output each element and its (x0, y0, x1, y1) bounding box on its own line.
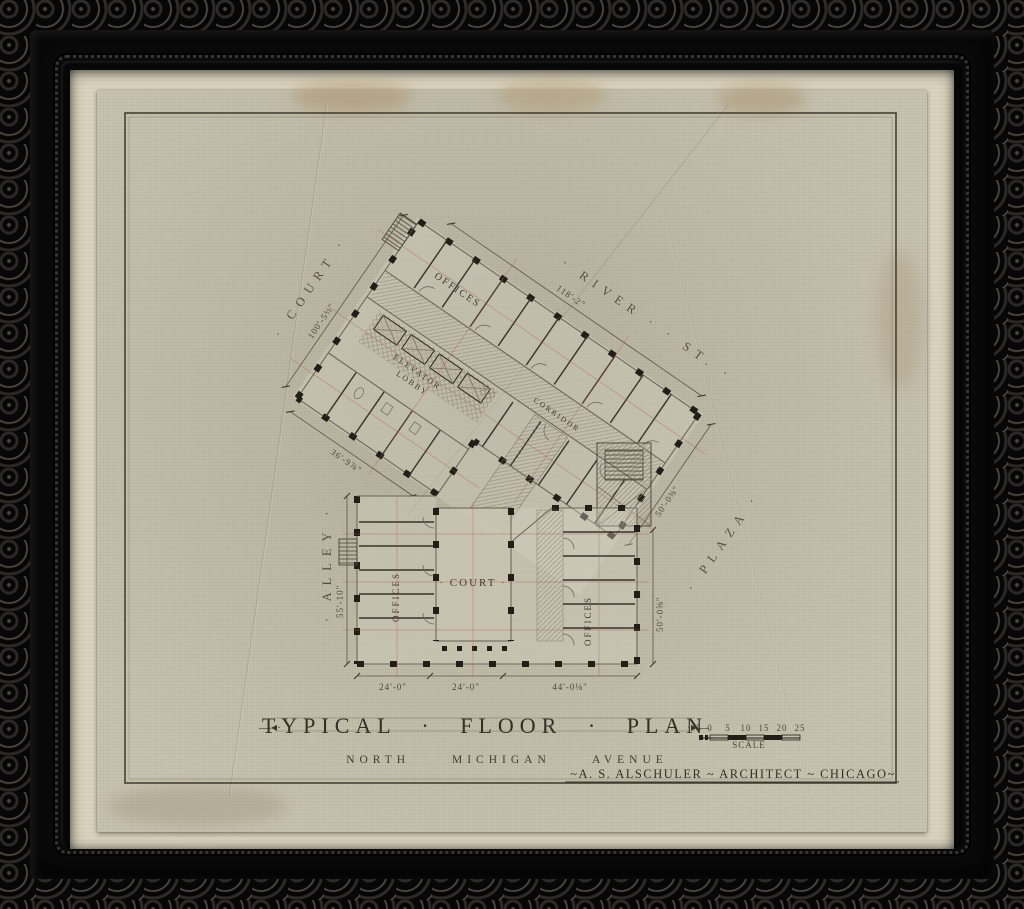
sheet-title: TYPICAL · FLOOR · PLAN (262, 713, 708, 738)
address-line: NORTH MICHIGAN AVENUE (346, 754, 668, 766)
svg-text:50'-0⅝": 50'-0⅝" (655, 596, 665, 632)
drawing-sheet: · RIVER · · ST. · 118'-2" · COURT · 100'… (97, 90, 927, 832)
svg-text:15: 15 (759, 723, 770, 733)
floor-plan-drawing: · RIVER · · ST. · 118'-2" · COURT · 100'… (97, 90, 927, 832)
svg-text:10: 10 (741, 723, 752, 733)
scale-label: SCALE (732, 740, 766, 750)
framed-floor-plan-artwork: · RIVER · · ST. · 118'-2" · COURT · 100'… (0, 0, 1024, 909)
street-label-plaza: · PLAZA · (684, 490, 763, 594)
svg-text:55'-10": 55'-10" (335, 585, 345, 618)
architect-line: ~A. S. ALSCHULER ~ ARCHITECT ~ CHICAGO~ (570, 767, 896, 781)
svg-text:5: 5 (696, 723, 702, 733)
street-label-court: · COURT · (271, 234, 350, 340)
right-wing-corridor (537, 510, 563, 641)
street-label-alley: · ALLEY · (320, 505, 334, 622)
scale-bar: 5 0 5 10 15 20 25 SCALE (696, 723, 805, 750)
dimension-plaza: 50'-0⅝" (650, 527, 665, 667)
lower-block: · COURT · OFFICES (339, 496, 649, 676)
svg-text:5: 5 (725, 723, 731, 733)
svg-text:24'-0": 24'-0" (379, 682, 407, 692)
svg-text:20: 20 (777, 723, 788, 733)
svg-text:0: 0 (707, 723, 713, 733)
room-label-offices-left: OFFICES (391, 572, 401, 622)
dimension-wing-southwest: 36'-9⅞" (329, 447, 364, 475)
dimension-alley: 55'-10" (335, 493, 350, 667)
dimension-bottom-bays: 24'-0" 24'-0" 44'-0⅛" (354, 673, 640, 692)
room-label-offices-right: OFFICES (583, 596, 593, 646)
svg-text:25: 25 (795, 723, 806, 733)
svg-text:24'-0": 24'-0" (452, 682, 480, 692)
svg-text:44'-0⅛": 44'-0⅛" (552, 682, 588, 692)
alley-stair (339, 539, 357, 565)
